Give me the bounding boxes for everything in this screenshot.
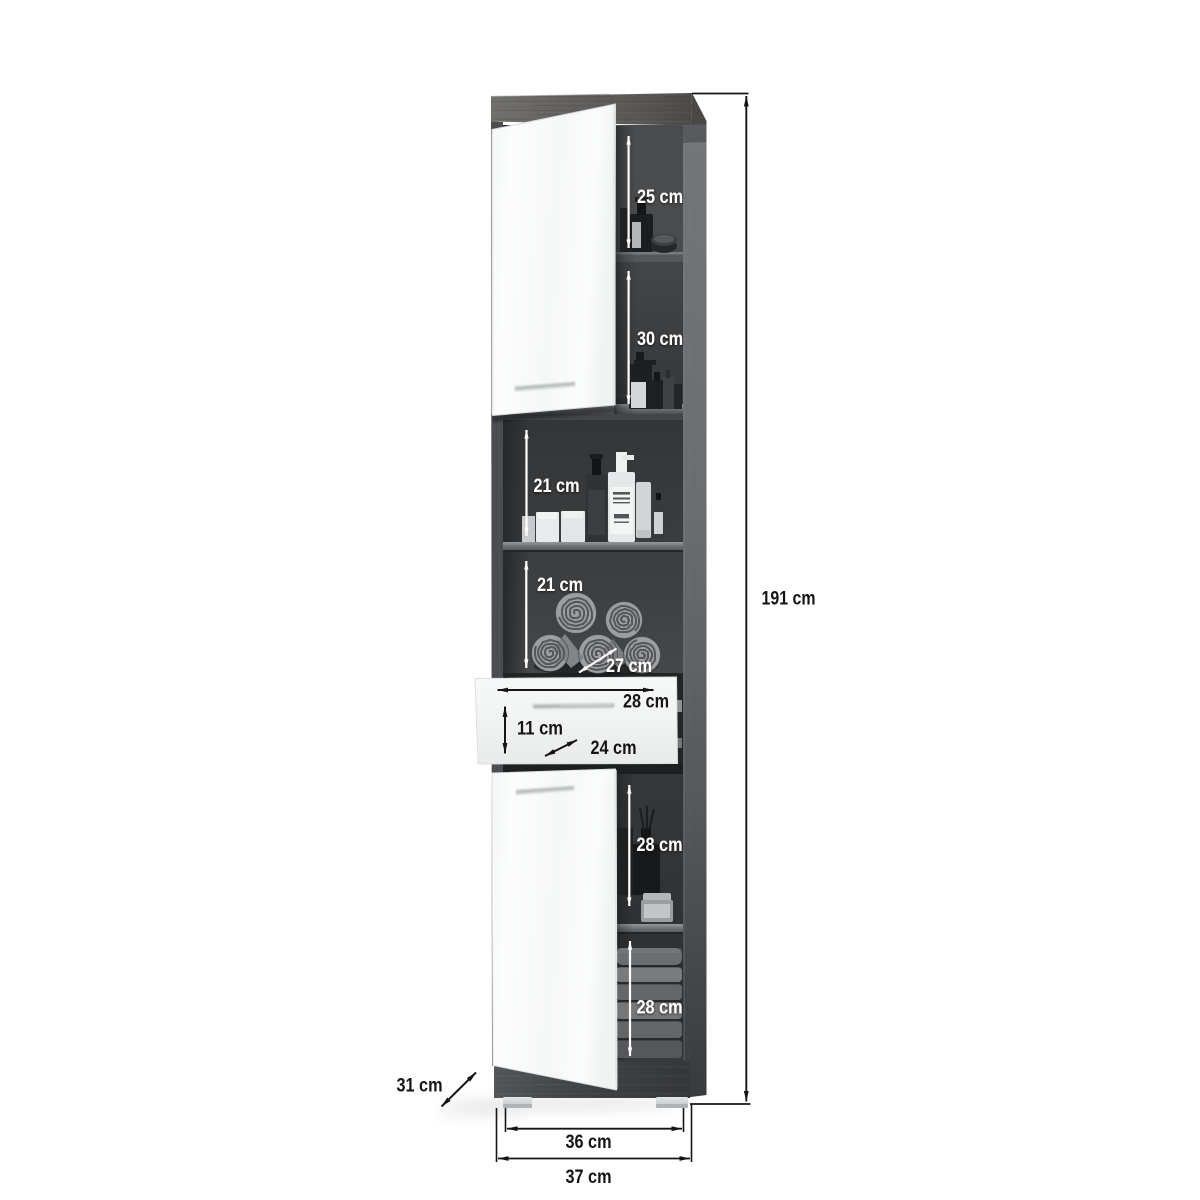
svg-text:37 cm: 37 cm [566,1166,612,1188]
svg-text:28 cm: 28 cm [623,691,669,713]
svg-text:24 cm: 24 cm [591,737,637,759]
svg-text:28 cm: 28 cm [637,997,683,1019]
svg-text:36 cm: 36 cm [566,1131,612,1153]
svg-text:28 cm: 28 cm [637,834,683,856]
svg-text:27 cm: 27 cm [606,655,652,677]
svg-text:25 cm: 25 cm [637,186,683,208]
svg-text:21 cm: 21 cm [534,475,580,497]
svg-text:30 cm: 30 cm [637,328,683,350]
svg-text:31 cm: 31 cm [397,1075,443,1097]
svg-text:191 cm: 191 cm [762,588,816,610]
svg-text:11 cm: 11 cm [517,718,563,740]
svg-text:21 cm: 21 cm [537,574,583,596]
